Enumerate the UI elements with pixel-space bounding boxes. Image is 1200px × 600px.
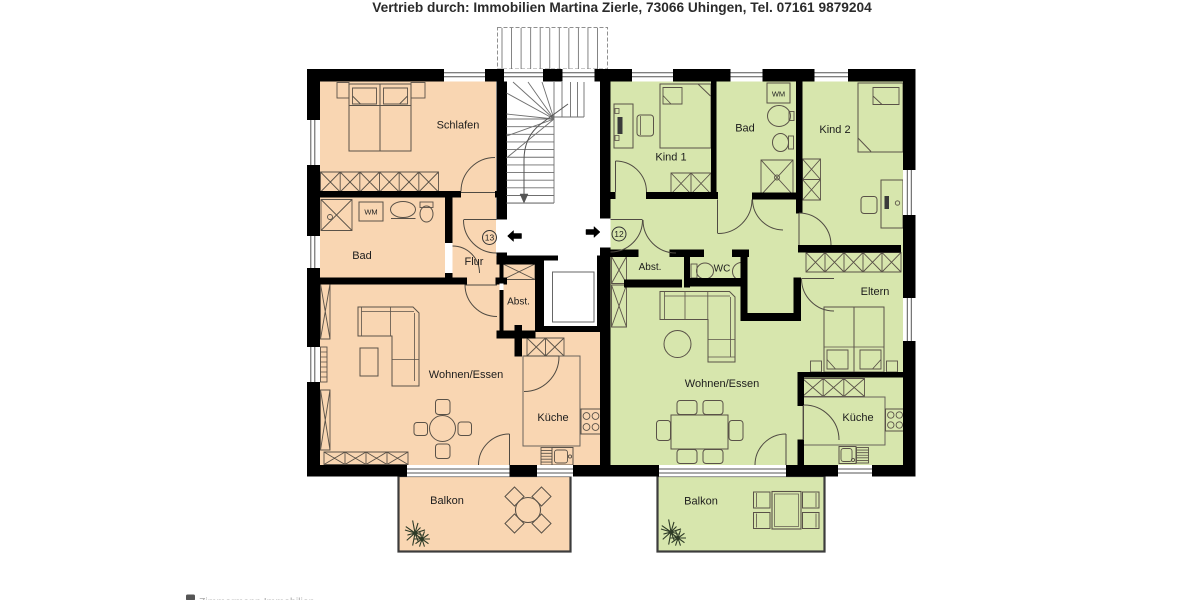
- svg-text:Flur: Flur: [465, 256, 484, 268]
- svg-text:Bad: Bad: [735, 123, 755, 135]
- svg-text:Balkon: Balkon: [430, 495, 464, 507]
- svg-text:13: 13: [485, 232, 495, 242]
- svg-text:Zimmermann Immobilien: Zimmermann Immobilien: [199, 596, 315, 600]
- svg-text:Balkon: Balkon: [684, 496, 718, 508]
- svg-text:Kind 2: Kind 2: [819, 124, 850, 136]
- svg-text:Vertrieb durch: Immobilien Mar: Vertrieb durch: Immobilien Martina Zierl…: [372, 0, 872, 15]
- svg-text:Bad: Bad: [352, 250, 372, 262]
- svg-text:WM: WM: [772, 90, 785, 99]
- svg-text:Wohnen/Essen: Wohnen/Essen: [429, 369, 503, 381]
- svg-text:Eltern: Eltern: [861, 286, 890, 298]
- svg-text:WM: WM: [364, 208, 377, 217]
- svg-text:Küche: Küche: [537, 412, 568, 424]
- svg-text:Abst.: Abst.: [639, 262, 662, 273]
- svg-text:Kind 1: Kind 1: [655, 152, 686, 164]
- svg-text:WC: WC: [714, 264, 731, 275]
- svg-text:Schlafen: Schlafen: [437, 120, 480, 132]
- svg-text:Wohnen/Essen: Wohnen/Essen: [685, 378, 759, 390]
- svg-text:12: 12: [614, 229, 624, 239]
- svg-text:Abst.: Abst.: [507, 297, 530, 308]
- svg-text:Küche: Küche: [842, 412, 873, 424]
